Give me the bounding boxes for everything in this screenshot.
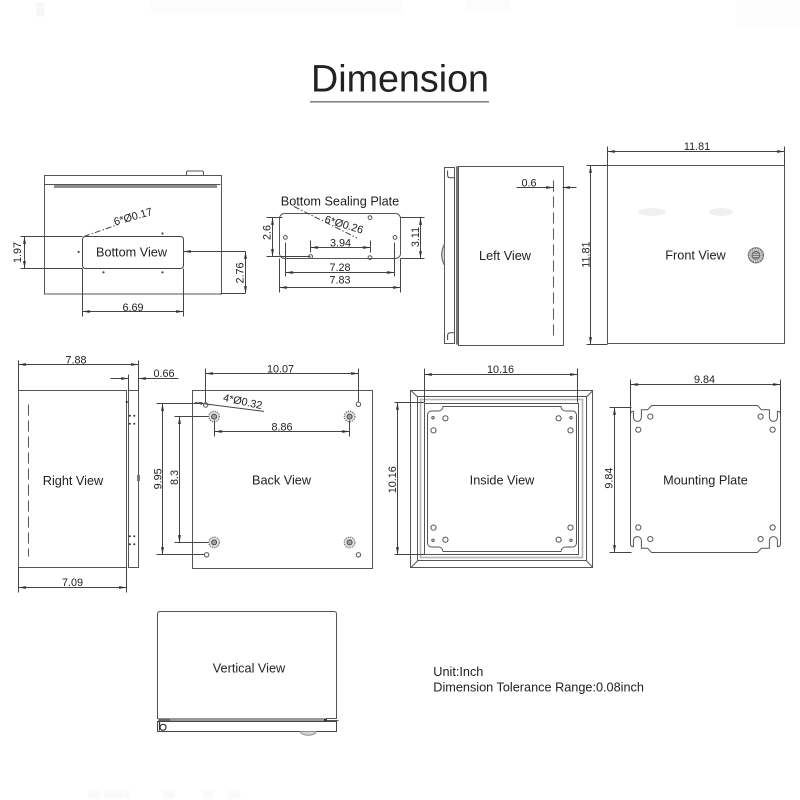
svg-text:11.81: 11.81 <box>580 241 592 267</box>
svg-text:Inside View: Inside View <box>470 474 535 488</box>
svg-text:6*Ø0.26: 6*Ø0.26 <box>323 214 364 237</box>
svg-text:11.81: 11.81 <box>684 141 710 153</box>
svg-text:Front View: Front View <box>665 249 726 263</box>
svg-text:9.95: 9.95 <box>152 468 164 489</box>
svg-text:Mounting Plate: Mounting Plate <box>663 474 748 488</box>
svg-text:9.84: 9.84 <box>603 468 615 489</box>
svg-text:10.07: 10.07 <box>267 363 294 375</box>
svg-text:6.69: 6.69 <box>122 302 143 314</box>
svg-text:Back View: Back View <box>252 474 312 488</box>
svg-text:8.86: 8.86 <box>271 421 292 433</box>
svg-text:Bottom Sealing Plate: Bottom Sealing Plate <box>281 195 400 209</box>
svg-text:0.66: 0.66 <box>153 368 174 380</box>
svg-text:2.76: 2.76 <box>235 262 247 283</box>
svg-text:7.83: 7.83 <box>329 274 350 286</box>
svg-text:0.6: 0.6 <box>521 177 536 189</box>
svg-text:7.28: 7.28 <box>329 262 350 274</box>
svg-text:7.09: 7.09 <box>62 577 83 589</box>
svg-text:10.16: 10.16 <box>487 364 514 376</box>
svg-text:6*Ø0.17: 6*Ø0.17 <box>112 206 153 228</box>
svg-text:1.97: 1.97 <box>12 242 24 263</box>
svg-text:Vertical View: Vertical View <box>213 662 286 676</box>
svg-text:Dimension Tolerance Range:0.08: Dimension Tolerance Range:0.08inch <box>433 680 644 694</box>
svg-text:Left View: Left View <box>479 249 532 263</box>
svg-text:Bottom View: Bottom View <box>96 245 168 259</box>
svg-text:3.94: 3.94 <box>330 237 351 249</box>
svg-text:7.88: 7.88 <box>65 355 86 367</box>
svg-text:10.16: 10.16 <box>387 466 399 493</box>
svg-text:3.11: 3.11 <box>410 227 422 247</box>
svg-text:Dimension: Dimension <box>311 58 489 100</box>
svg-text:Unit:Inch: Unit:Inch <box>433 665 483 679</box>
svg-text:9.84: 9.84 <box>694 374 715 386</box>
svg-text:Right View: Right View <box>43 474 104 488</box>
svg-text:8.3: 8.3 <box>169 470 181 485</box>
svg-text:2.6: 2.6 <box>261 225 273 240</box>
